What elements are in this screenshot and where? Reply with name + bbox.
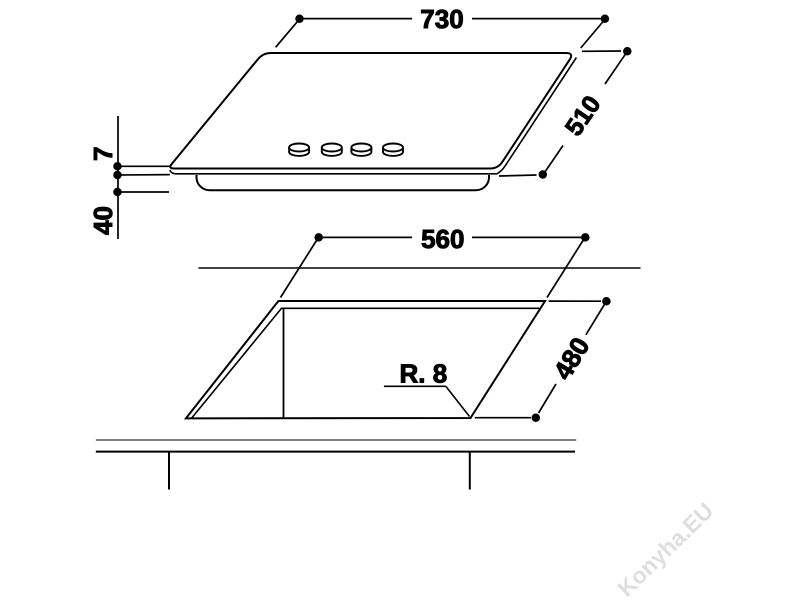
svg-text:Konyha.EU: Konyha.EU [612, 497, 718, 600]
svg-text:R. 8: R. 8 [400, 358, 448, 388]
svg-text:560: 560 [421, 224, 464, 254]
svg-text:40: 40 [88, 206, 118, 235]
svg-text:730: 730 [420, 4, 463, 34]
svg-text:510: 510 [560, 91, 607, 141]
svg-text:7: 7 [88, 147, 118, 161]
svg-text:480: 480 [547, 332, 595, 385]
